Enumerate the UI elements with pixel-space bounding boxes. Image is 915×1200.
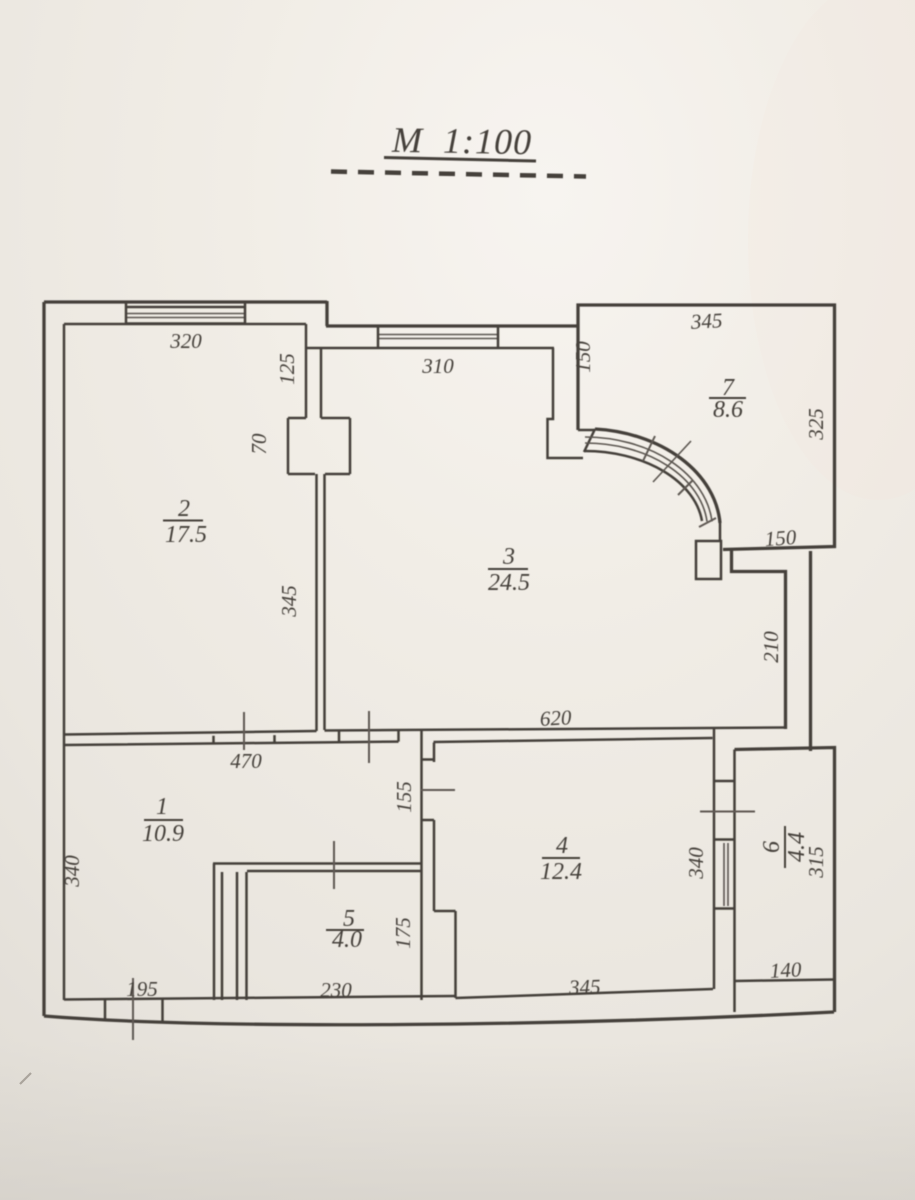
svg-text:345: 345 xyxy=(277,585,301,618)
svg-text:70: 70 xyxy=(247,433,271,455)
svg-text:1: 1 xyxy=(156,794,168,820)
svg-text:340: 340 xyxy=(60,855,84,888)
svg-text:320: 320 xyxy=(169,329,202,353)
svg-text:125: 125 xyxy=(275,353,299,385)
svg-text:345: 345 xyxy=(689,308,723,334)
svg-text:620: 620 xyxy=(539,705,572,731)
svg-text:3: 3 xyxy=(502,544,515,570)
svg-text:325: 325 xyxy=(804,408,828,441)
svg-text:2: 2 xyxy=(178,496,190,522)
svg-text:310: 310 xyxy=(421,354,454,378)
svg-text:M 1:100: M 1:100 xyxy=(391,120,533,162)
svg-text:150: 150 xyxy=(571,341,595,373)
svg-text:4: 4 xyxy=(556,833,568,859)
svg-text:8.6: 8.6 xyxy=(713,397,743,423)
svg-text:195: 195 xyxy=(126,977,158,1001)
svg-text:150: 150 xyxy=(764,525,798,551)
svg-text:230: 230 xyxy=(320,978,352,1002)
svg-text:340: 340 xyxy=(684,847,708,880)
svg-text:12.4: 12.4 xyxy=(540,859,582,885)
svg-text:470: 470 xyxy=(230,749,262,773)
svg-text:10.9: 10.9 xyxy=(142,821,184,847)
svg-text:4.0: 4.0 xyxy=(332,927,362,953)
svg-text:4.4: 4.4 xyxy=(784,832,810,862)
svg-text:175: 175 xyxy=(391,917,415,949)
svg-text:6: 6 xyxy=(759,841,785,853)
svg-text:210: 210 xyxy=(759,631,783,663)
svg-text:140: 140 xyxy=(769,957,802,983)
svg-text:345: 345 xyxy=(568,974,601,999)
svg-text:24.5: 24.5 xyxy=(488,570,530,596)
svg-text:155: 155 xyxy=(392,781,416,813)
svg-text:17.5: 17.5 xyxy=(165,522,207,548)
